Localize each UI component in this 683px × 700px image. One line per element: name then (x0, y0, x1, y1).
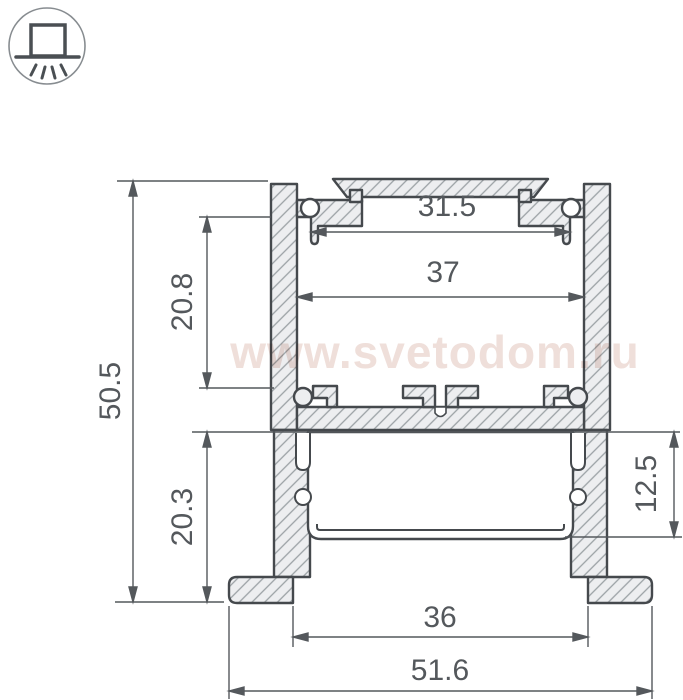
surface-light-icon (9, 8, 85, 84)
right-knob (569, 388, 587, 406)
diffuser-cavity (308, 432, 573, 539)
right-hook (544, 386, 568, 407)
center-right-hook (446, 386, 478, 407)
right-riser (519, 190, 531, 202)
left-foot (229, 577, 293, 603)
left-screw-channel (301, 199, 319, 217)
dim-label-total-width: 51.6 (411, 654, 469, 687)
dim-label-feet-gap: 36 (423, 601, 456, 634)
right-clip-groove (571, 433, 585, 470)
dim-label-diffuser-height: 12.5 (630, 455, 663, 513)
dim-feet-gap: 36 (293, 601, 588, 647)
right-upper-wall (584, 184, 610, 430)
right-screw-channel (562, 199, 580, 217)
dim-label-upper-height: 20.8 (166, 273, 199, 331)
left-clip-bulb (295, 489, 311, 505)
technical-drawing-page: 50.5 20.8 20.3 12.5 (0, 0, 683, 700)
center-slot (435, 407, 446, 417)
icon-circle (9, 8, 85, 84)
dim-label-inner-width: 37 (426, 256, 459, 289)
right-clip-bulb (570, 489, 586, 505)
right-foot (588, 577, 652, 603)
left-hook (313, 386, 337, 407)
profile-drawing: 50.5 20.8 20.3 12.5 (0, 0, 683, 700)
dim-inner-width: 37 (297, 256, 584, 301)
center-left-hook (403, 386, 435, 407)
left-upper-wall (271, 184, 297, 430)
dim-label-total-height: 50.5 (94, 362, 127, 420)
profile-section (229, 179, 652, 603)
left-riser (350, 190, 362, 202)
dim-label-slot-width: 31.5 (418, 190, 476, 223)
left-knob (294, 388, 312, 406)
left-clip-groove (296, 433, 310, 470)
watermark-text: www.svetodom.ru (229, 326, 639, 378)
dim-label-lower-height: 20.3 (166, 488, 199, 546)
